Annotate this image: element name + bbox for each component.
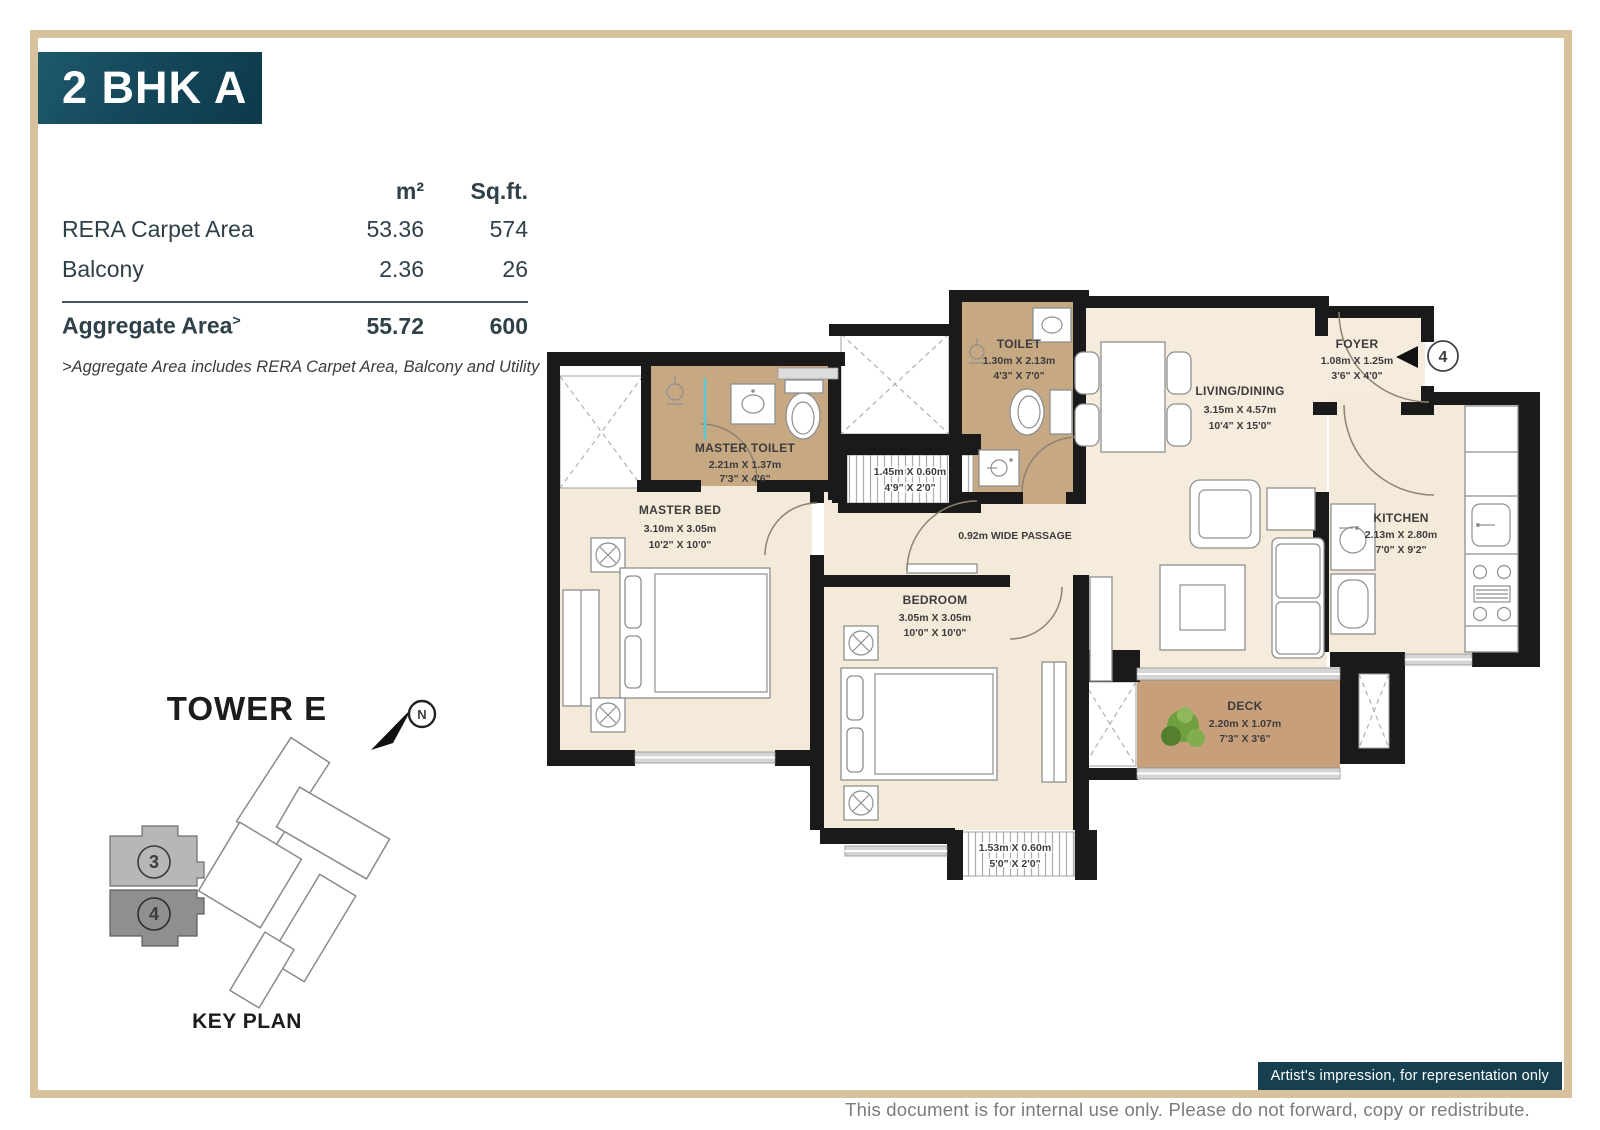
svg-text:10'0" X 10'0": 10'0" X 10'0": [904, 627, 967, 639]
keyplan: TOWER E N 3 4 KEY PLAN: [90, 670, 450, 1042]
shaft-icon: [1084, 682, 1136, 766]
brochure-page: { "page": { "title": "2 BHK A", "badge":…: [0, 0, 1600, 1130]
table-row-balcony: Balcony 2.36 26: [62, 256, 528, 296]
label-passage: 0.92m WIDE PASSAGE: [958, 530, 1072, 542]
row-sqft: 26: [424, 256, 528, 283]
side-table: [1267, 488, 1315, 530]
svg-text:7'3" X 3'6": 7'3" X 3'6": [1219, 733, 1270, 745]
fan-icon: [844, 626, 878, 660]
row-label: Aggregate Area>: [62, 312, 306, 340]
svg-text:3'6" X 4'0": 3'6" X 4'0": [1331, 370, 1382, 382]
row-sqft: 600: [424, 313, 528, 340]
label-living-dining: LIVING/DINING: [1195, 384, 1284, 398]
svg-text:7'0" X 9'2": 7'0" X 9'2": [1375, 544, 1426, 556]
table-row-aggregate: Aggregate Area> 55.72 600: [62, 301, 528, 348]
floorplan: 4 MASTER TOILET 2.21m X 1.37m 7'3" X 4'6…: [545, 290, 1545, 882]
coffee-table: [1160, 565, 1245, 650]
footer-disclaimer: This document is for internal use only. …: [845, 1099, 1530, 1121]
fan-icon: [591, 538, 625, 572]
sliding-door: [1137, 668, 1340, 680]
svg-text:1.08m X 1.25m: 1.08m X 1.25m: [1321, 355, 1393, 367]
fan-icon: [844, 786, 878, 820]
row-label: RERA Carpet Area: [62, 216, 306, 243]
label-ledge-2-m: 1.53m X 0.60m: [979, 842, 1051, 854]
label-kitchen: KITCHEN: [1373, 511, 1428, 525]
tv-unit: [1090, 577, 1112, 681]
label-bedroom: BEDROOM: [903, 593, 968, 607]
label-foyer: FOYER: [1336, 337, 1379, 351]
svg-text:10'2" X 10'0": 10'2" X 10'0": [649, 539, 712, 551]
washbasin-icon: [979, 450, 1019, 486]
keyplan-caption: KEY PLAN: [192, 1010, 302, 1033]
window: [635, 752, 775, 763]
svg-text:3.05m X 3.05m: 3.05m X 3.05m: [899, 612, 971, 624]
row-label: Balcony: [62, 256, 306, 283]
svg-text:3.10m X 3.05m: 3.10m X 3.05m: [644, 523, 716, 535]
area-summary-table: m² Sq.ft. RERA Carpet Area 53.36 574 Bal…: [62, 178, 528, 348]
row-m2: 53.36: [306, 216, 424, 243]
north-label: N: [417, 707, 426, 722]
shaft-icon: [560, 376, 643, 488]
shelf: [778, 368, 838, 379]
label-ledge-1-ft: 4'9" X 2'0": [884, 482, 935, 494]
table-row-rera: RERA Carpet Area 53.36 574: [62, 216, 528, 256]
shaft-icon: [1359, 674, 1389, 748]
unit-4-label: 4: [149, 904, 159, 924]
washer-icon: [1331, 574, 1375, 634]
svg-text:10'4" X 15'0": 10'4" X 15'0": [1209, 420, 1272, 432]
deck-railing: [1137, 768, 1340, 779]
sofa: [1272, 538, 1324, 658]
col-header-m2: m²: [306, 178, 424, 205]
label-ledge-1-m: 1.45m X 0.60m: [874, 466, 946, 478]
unit-title-text: 2 BHK A: [62, 62, 247, 114]
table-header-row: m² Sq.ft.: [62, 178, 528, 216]
unit-3-label: 3: [149, 852, 159, 872]
shaft-icon: [841, 334, 949, 434]
svg-text:2.20m X 1.07m: 2.20m X 1.07m: [1209, 718, 1281, 730]
label-master-toilet: MASTER TOILET: [695, 441, 796, 455]
keyplan-unit-3: 3: [110, 826, 204, 886]
aggregate-note: >Aggregate Area includes RERA Carpet Are…: [62, 358, 539, 377]
row-sqft: 574: [424, 216, 528, 243]
label-deck: DECK: [1227, 699, 1262, 713]
keyplan-title: TOWER E: [167, 690, 327, 727]
label-toilet: TOILET: [997, 337, 1042, 351]
svg-text:2.21m X 1.37m: 2.21m X 1.37m: [709, 459, 781, 471]
artist-impression-badge: Artist's impression, for representation …: [1258, 1062, 1562, 1090]
double-bed: [841, 668, 997, 780]
keyplan-building-outline: [199, 738, 390, 1008]
col-header-sqft: Sq.ft.: [424, 178, 528, 205]
window: [845, 846, 947, 856]
washbasin-icon: [731, 384, 775, 424]
label-master-bed: MASTER BED: [639, 503, 721, 517]
double-bed: [620, 568, 770, 698]
row-m2: 55.72: [306, 313, 424, 340]
window: [1405, 654, 1472, 665]
svg-text:4'3" X 7'0": 4'3" X 7'0": [993, 370, 1044, 382]
badge-text: Artist's impression, for representation …: [1271, 1068, 1549, 1084]
aggregate-footnote-mark: >: [232, 312, 240, 328]
fan-icon: [591, 698, 625, 732]
armchair: [1190, 480, 1260, 548]
svg-text:3.15m X 4.57m: 3.15m X 4.57m: [1204, 404, 1276, 416]
label-ledge-2-ft: 5'0" X 2'0": [989, 858, 1040, 870]
svg-text:7'3" X 4'6": 7'3" X 4'6": [719, 473, 770, 485]
keyplan-unit-4: 4: [110, 890, 204, 946]
row-m2: 2.36: [306, 256, 424, 283]
north-arrow-icon: N: [371, 701, 435, 750]
svg-text:2.13m X 2.80m: 2.13m X 2.80m: [1365, 529, 1437, 541]
svg-text:1.30m X 2.13m: 1.30m X 2.13m: [983, 355, 1055, 367]
unit-number: 4: [1439, 349, 1448, 366]
unit-title: 2 BHK A: [38, 52, 262, 124]
